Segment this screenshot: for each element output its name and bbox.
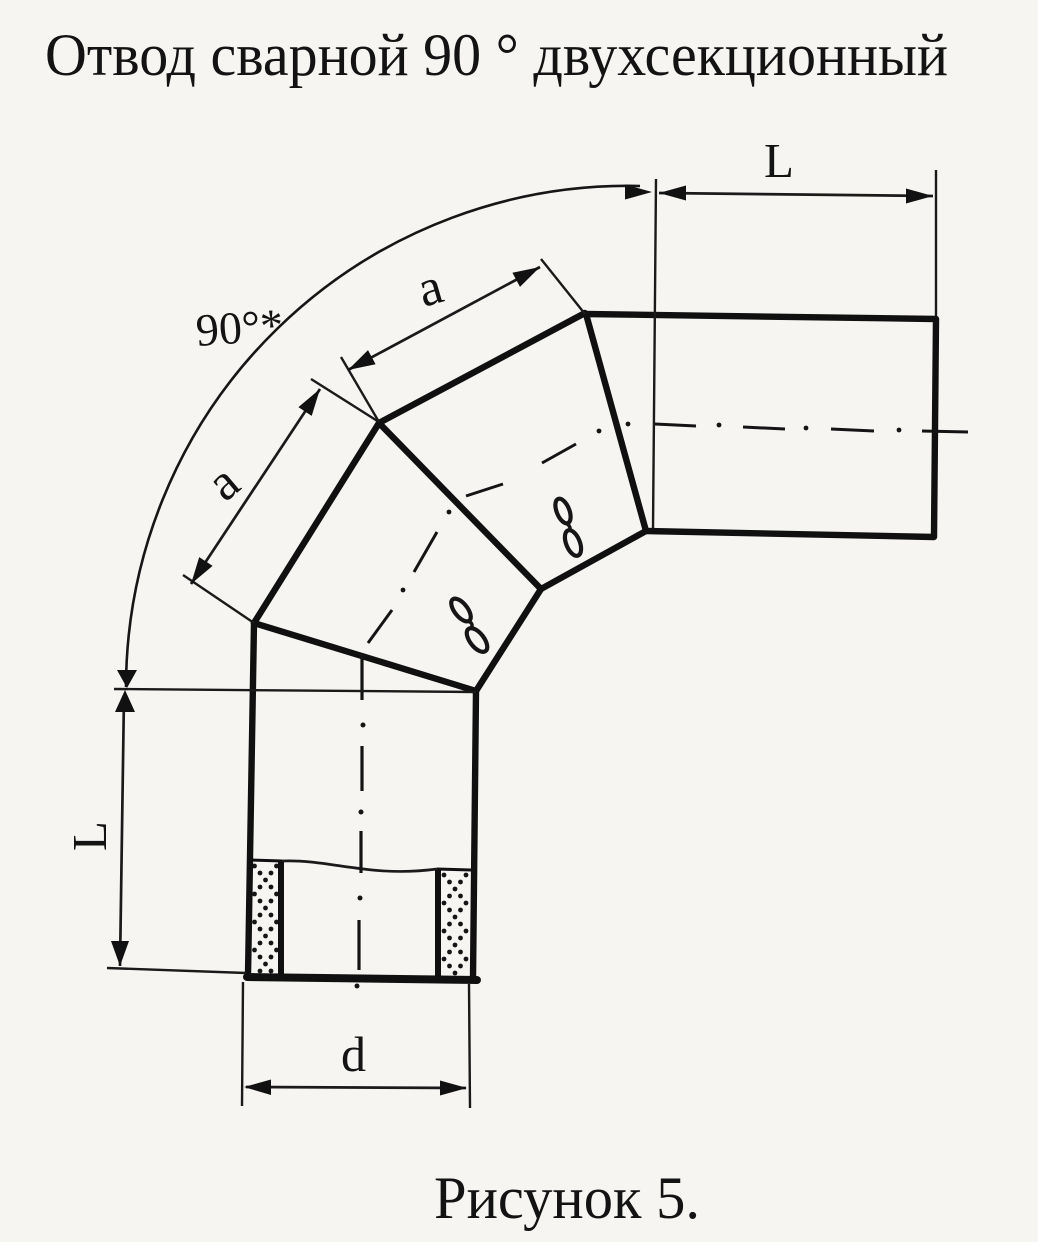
svg-text:Отвод сварной 90 ° двухсекцион: Отвод сварной 90 ° двухсекционный (45, 22, 948, 88)
svg-text:90°*: 90°* (194, 299, 285, 356)
svg-text:d: d (341, 1026, 366, 1082)
svg-text:Рисунок 5.: Рисунок 5. (434, 1165, 700, 1231)
svg-text:L: L (764, 133, 794, 188)
svg-text:L: L (62, 821, 117, 851)
